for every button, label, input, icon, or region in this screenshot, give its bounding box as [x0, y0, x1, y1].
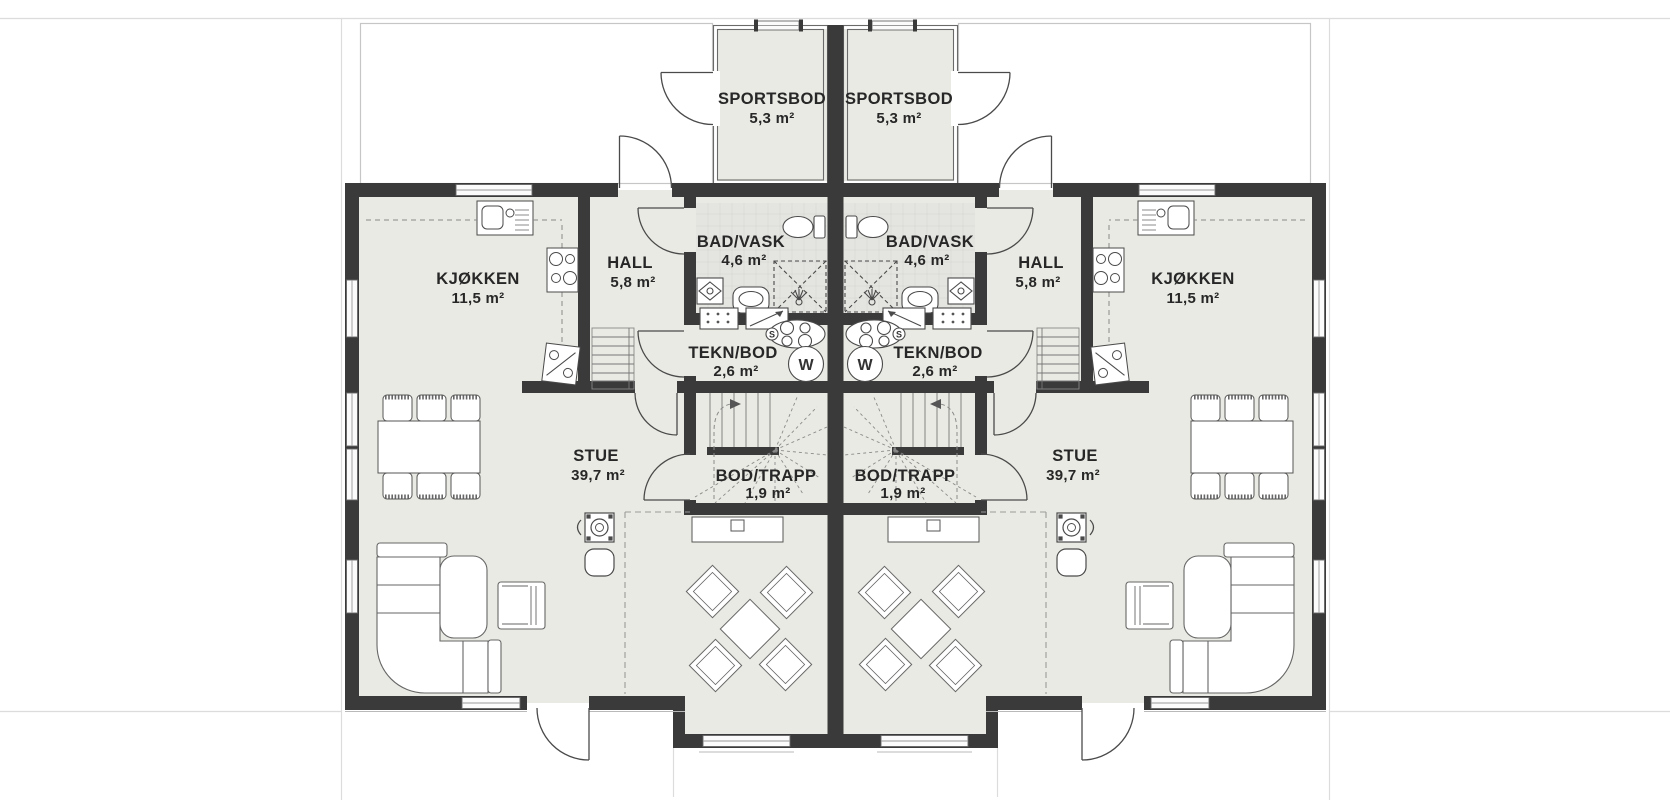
sofa-armrest — [377, 543, 447, 557]
floor-plan-drawing: SPORTSBOD 5,3 m² SPORTSBOD 5,3 m² BAD/VA… — [0, 0, 1670, 800]
svg-text:HALL: HALL — [1018, 254, 1064, 272]
wall-vent-grille — [700, 308, 738, 329]
coffee-table — [440, 556, 487, 638]
svg-text:2,6 m²: 2,6 m² — [912, 363, 957, 380]
svg-text:11,5 m²: 11,5 m² — [1167, 290, 1220, 307]
washing-machine-symbol-left: W — [798, 357, 814, 374]
wall-segment — [684, 503, 836, 515]
armchair — [498, 582, 545, 629]
porch-outline — [361, 24, 713, 184]
floor-plan-canvas: SPORTSBOD 5,3 m² SPORTSBOD 5,3 m² BAD/VA… — [0, 0, 1670, 800]
kitchen-sink-unit — [477, 201, 533, 235]
svg-text:BAD/VASK: BAD/VASK — [697, 233, 785, 251]
wall-segment — [345, 183, 359, 710]
svg-text:39,7 m²: 39,7 m² — [1046, 467, 1100, 484]
svg-text:STUE: STUE — [573, 447, 619, 465]
svg-text:STUE: STUE — [1052, 447, 1098, 465]
svg-text:5,3 m²: 5,3 m² — [876, 110, 921, 127]
svg-text:KJØKKEN: KJØKKEN — [1151, 270, 1234, 288]
wall-segment — [672, 183, 836, 197]
dining-group — [378, 395, 480, 499]
unit-right — [836, 20, 1327, 761]
svg-text:SPORTSBOD: SPORTSBOD — [718, 90, 826, 108]
svg-text:BOD/TRAPP: BOD/TRAPP — [716, 467, 817, 485]
svg-text:2,6 m²: 2,6 m² — [713, 363, 758, 380]
party-wall — [828, 25, 844, 748]
svg-text:BOD/TRAPP: BOD/TRAPP — [855, 467, 956, 485]
tv-bench — [692, 517, 783, 542]
sofa-armrest — [488, 640, 501, 693]
wall-segment — [578, 197, 590, 390]
washing-machine-symbol-right: W — [857, 357, 873, 374]
unit-left — [345, 20, 836, 761]
svg-text:4,6 m²: 4,6 m² — [721, 252, 766, 269]
dishwasher — [542, 343, 580, 385]
svg-text:KJØKKEN: KJØKKEN — [436, 270, 519, 288]
cooktop — [547, 248, 578, 292]
wall-segment — [522, 381, 635, 393]
svg-text:HALL: HALL — [607, 254, 653, 272]
floor-drain-unit — [697, 278, 723, 304]
drain-symbol-right: S — [896, 330, 902, 340]
svg-text:5,8 m²: 5,8 m² — [1015, 274, 1060, 291]
terrace-door — [537, 708, 589, 760]
svg-text:BAD/VASK: BAD/VASK — [886, 233, 974, 251]
svg-text:4,6 m²: 4,6 m² — [904, 252, 949, 269]
dining-table — [378, 421, 480, 473]
wall-segment — [684, 381, 836, 393]
svg-text:5,3 m²: 5,3 m² — [749, 110, 794, 127]
svg-text:39,7 m²: 39,7 m² — [571, 467, 625, 484]
svg-text:5,8 m²: 5,8 m² — [610, 274, 655, 291]
svg-text:1,9 m²: 1,9 m² — [745, 485, 790, 502]
svg-text:SPORTSBOD: SPORTSBOD — [845, 90, 953, 108]
svg-text:TEKN/BOD: TEKN/BOD — [893, 344, 982, 362]
wall-segment — [589, 696, 685, 710]
svg-text:TEKN/BOD: TEKN/BOD — [688, 344, 777, 362]
wood-basket — [585, 549, 614, 576]
svg-text:11,5 m²: 11,5 m² — [452, 290, 505, 307]
toilet — [783, 216, 825, 238]
wall-segment — [684, 197, 696, 208]
svg-text:1,9 m²: 1,9 m² — [880, 485, 925, 502]
drain-symbol-left: S — [769, 330, 775, 340]
